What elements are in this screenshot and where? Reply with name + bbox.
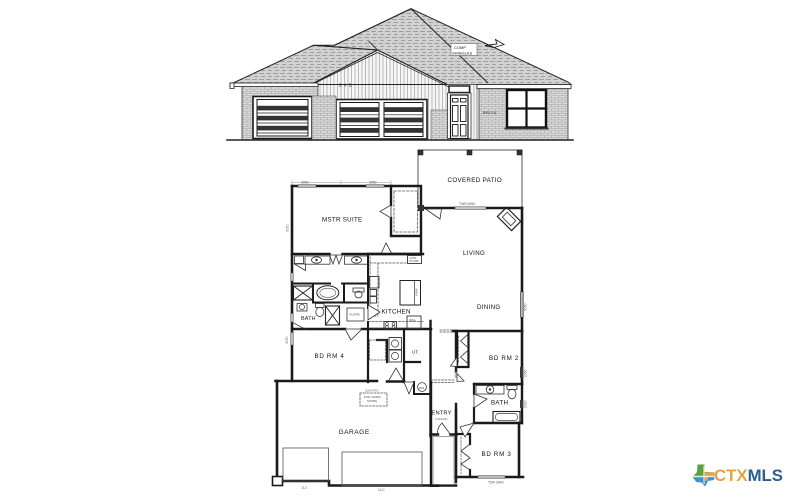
svg-text:3050: 3050 [301, 181, 309, 185]
svg-text:8-0: 8-0 [302, 486, 307, 490]
svg-text:WALL: WALL [409, 318, 417, 322]
svg-text:TDN 3040: TDN 3040 [488, 481, 504, 485]
svg-text:CTXMLS: CTXMLS [714, 466, 783, 485]
svg-text:TWN 6050: TWN 6050 [459, 202, 475, 206]
svg-text:22x54 ATTIC: 22x54 ATTIC [365, 390, 379, 393]
svg-text:SHINGLES: SHINGLES [452, 51, 473, 56]
svg-text:KITCHEN: KITCHEN [382, 309, 411, 316]
svg-text:PLATFM: PLATFM [350, 313, 360, 317]
svg-text:2050: 2050 [524, 369, 528, 377]
svg-text:BATH: BATH [491, 400, 508, 407]
svg-text:GARAGE: GARAGE [339, 429, 370, 436]
svg-text:BRICK: BRICK [483, 111, 497, 115]
svg-text:PLGND: PLGND [410, 259, 419, 263]
svg-text:STAIRS: STAIRS [367, 399, 377, 403]
svg-text:COVERED PATIO: COVERED PATIO [448, 177, 503, 184]
svg-text:BD RM 4: BD RM 4 [315, 353, 345, 360]
svg-text:3050: 3050 [369, 181, 377, 185]
svg-text:UT.: UT. [412, 350, 419, 355]
svg-text:5050: 5050 [286, 224, 290, 232]
svg-text:WH: WH [419, 386, 424, 390]
svg-text:2020: 2020 [524, 400, 528, 408]
svg-text:MSTR SUITE: MSTR SUITE [322, 217, 362, 224]
svg-text:BD RM 3: BD RM 3 [482, 451, 512, 458]
svg-text:5050: 5050 [524, 303, 528, 311]
svg-text:COMP: COMP [454, 45, 466, 50]
svg-text:DINING: DINING [477, 304, 500, 311]
svg-text:LIVING: LIVING [463, 250, 485, 257]
svg-text:B 4 B: B 4 B [339, 83, 352, 88]
svg-text:4 BAR: 4 BAR [415, 288, 419, 296]
svg-text:3050: 3050 [285, 336, 289, 344]
svg-text:16-0: 16-0 [378, 488, 385, 492]
svg-text:BD RM 2: BD RM 2 [489, 355, 519, 362]
svg-text:9 CEILING: 9 CEILING [435, 417, 448, 421]
svg-text:ENTRY: ENTRY [432, 411, 452, 417]
svg-text:BATH: BATH [301, 316, 316, 322]
